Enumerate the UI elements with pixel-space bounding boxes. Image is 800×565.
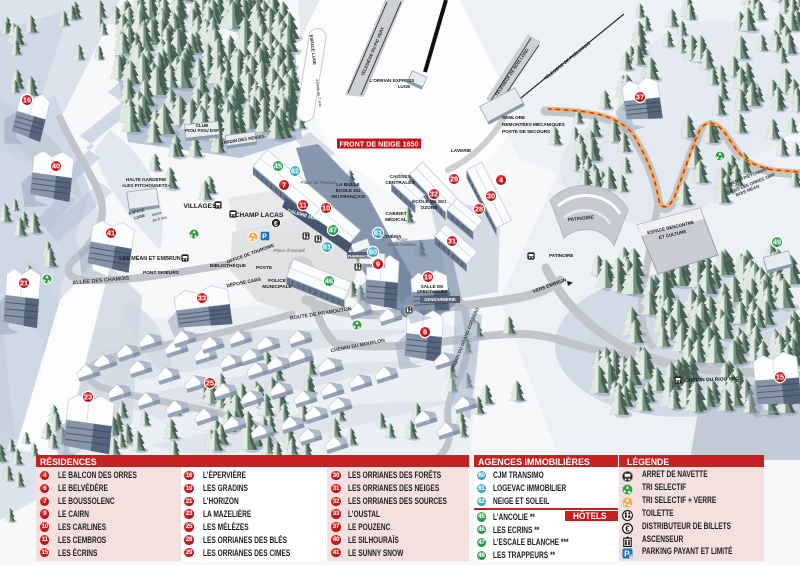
svg-text:REMONTÉES MÉCANIQUES: REMONTÉES MÉCANIQUES xyxy=(502,120,565,127)
svg-text:P: P xyxy=(624,549,630,559)
svg-text:«LES PITCHOUNETS»: «LES PITCHOUNETS» xyxy=(122,183,171,188)
svg-text:CABINET: CABINET xyxy=(385,211,406,217)
svg-text:45: 45 xyxy=(274,162,282,171)
svg-text:16: 16 xyxy=(23,96,31,105)
svg-text:L’ORRIAN EXPRESS: L’ORRIAN EXPRESS xyxy=(370,78,415,83)
svg-text:PATINOIRE: PATINOIRE xyxy=(549,253,573,258)
svg-text:Émile Nadeau: Émile Nadeau xyxy=(388,242,416,247)
svg-text:€: € xyxy=(625,524,630,533)
svg-text:LA BULLE: LA BULLE xyxy=(336,182,360,188)
svg-text:CHAMP LACAS: CHAMP LACAS xyxy=(235,212,284,219)
svg-text:6: 6 xyxy=(423,328,427,337)
svg-text:47: 47 xyxy=(329,226,337,235)
svg-text:GENDARMERIE: GENDARMERIE xyxy=(424,297,456,302)
svg-text:49: 49 xyxy=(773,238,781,247)
svg-text:LES MÉAN ET EMBRUN: LES MÉAN ET EMBRUN xyxy=(119,254,181,262)
svg-text:SKI FRANÇAIS: SKI FRANÇAIS xyxy=(331,194,366,200)
svg-text:46: 46 xyxy=(325,277,333,286)
svg-text:21: 21 xyxy=(20,279,28,288)
svg-text:PIOU PIOU ESF: PIOU PIOU ESF xyxy=(185,128,219,133)
svg-text:60: 60 xyxy=(369,248,377,257)
svg-text:POSTE DE SECOURS: POSTE DE SECOURS xyxy=(502,129,550,134)
svg-text:33: 33 xyxy=(198,294,206,303)
svg-text:31: 31 xyxy=(448,237,456,246)
svg-text:OZONE: OZONE xyxy=(420,205,438,211)
svg-text:29: 29 xyxy=(450,175,458,184)
svg-text:LAVERIE: LAVERIE xyxy=(451,148,472,154)
svg-text:POSTE: POSTE xyxy=(256,265,273,271)
svg-text:POLICE: POLICE xyxy=(268,278,287,284)
svg-text:CENTRALES: CENTRALES xyxy=(385,180,415,186)
svg-text:23: 23 xyxy=(84,393,92,402)
svg-text:Place d’Accueil: Place d’Accueil xyxy=(273,248,305,253)
svg-text:P: P xyxy=(262,232,267,241)
svg-text:61: 61 xyxy=(374,229,382,238)
svg-text:37: 37 xyxy=(636,93,644,102)
svg-text:61: 61 xyxy=(323,243,331,252)
svg-text:Place du Festival: Place du Festival xyxy=(301,180,337,185)
svg-text:VILLAGES: VILLAGES xyxy=(184,203,218,210)
svg-text:MUNICIPALE: MUNICIPALE xyxy=(262,284,292,290)
svg-text:CAISSES: CAISSES xyxy=(389,174,411,180)
svg-text:41: 41 xyxy=(107,229,115,238)
svg-text:30: 30 xyxy=(487,192,495,201)
svg-text:40: 40 xyxy=(52,162,60,171)
svg-text:€: € xyxy=(274,221,278,228)
svg-text:9: 9 xyxy=(376,260,380,269)
svg-text:FRONT DE NEIGE 1650: FRONT DE NEIGE 1650 xyxy=(339,139,418,148)
svg-text:HALTE GARDERIE: HALTE GARDERIE xyxy=(126,177,167,182)
svg-text:25: 25 xyxy=(206,379,214,388)
svg-text:62: 62 xyxy=(291,167,299,176)
svg-text:10: 10 xyxy=(322,204,330,213)
svg-text:7: 7 xyxy=(282,181,286,190)
svg-text:PONT SKIEURS: PONT SKIEURS xyxy=(143,270,180,276)
svg-text:28: 28 xyxy=(475,205,483,214)
svg-text:SPECTACLES: SPECTACLES xyxy=(417,289,448,294)
svg-text:11: 11 xyxy=(299,201,307,210)
svg-text:SEMLORE: SEMLORE xyxy=(502,115,525,120)
svg-text:PHARMACIE: PHARMACIE xyxy=(348,255,371,259)
svg-text:19: 19 xyxy=(424,273,432,282)
svg-text:15: 15 xyxy=(776,373,784,382)
svg-text:32: 32 xyxy=(430,190,438,199)
svg-text:LUGE: LUGE xyxy=(398,84,411,89)
